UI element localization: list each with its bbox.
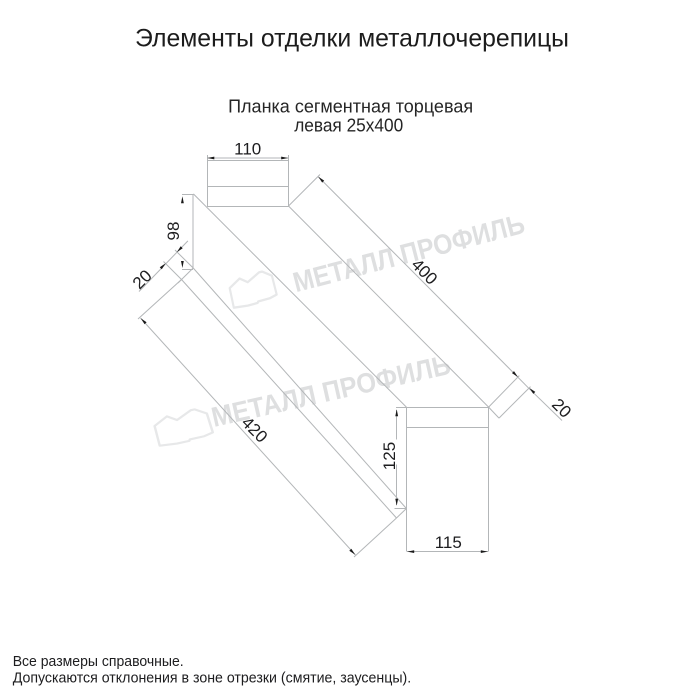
svg-text:Планка сегментная торцевая: Планка сегментная торцевая [228,96,473,116]
svg-text:115: 115 [435,533,462,552]
svg-text:Допускаются отклонения в зоне: Допускаются отклонения в зоне отрезки (с… [13,671,412,687]
svg-text:98: 98 [164,222,183,241]
svg-text:125: 125 [380,442,399,470]
svg-text:Все размеры справочные.: Все размеры справочные. [13,654,184,670]
svg-text:110: 110 [234,140,261,159]
svg-text:левая 25х400: левая 25х400 [294,116,403,136]
svg-text:Элементы отделки металлочерепи: Элементы отделки металлочерепицы [135,25,569,52]
